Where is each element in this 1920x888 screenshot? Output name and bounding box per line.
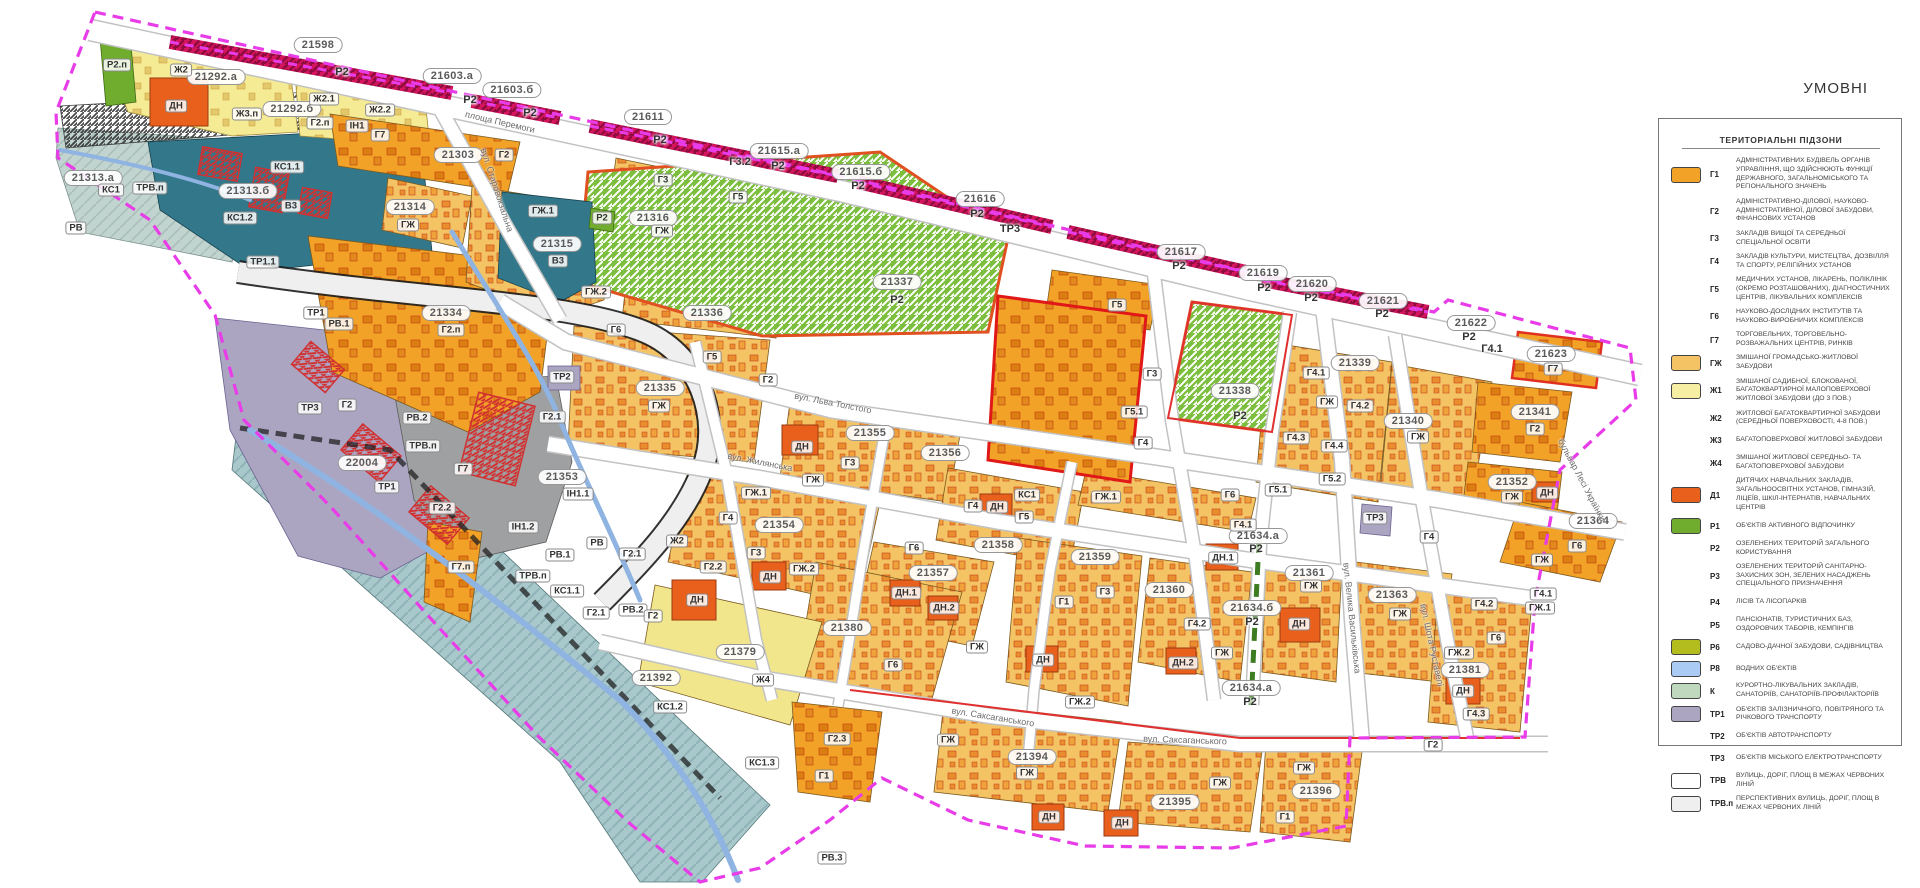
legend-item: ТРВ.пПЕРСПЕКТИВНИХ ВУЛИЦЬ, ДОРІГ, ПЛОЩ В…: [1671, 795, 1891, 813]
legend-item: Ж1ЗМІШАНОЇ САДИБНОЇ, БЛОКОВАНОЇ, БАГАТОК…: [1671, 378, 1891, 404]
legend-item: Р3ОЗЕЛЕНЕНИХ ТЕРИТОРІЙ САНІТАРНО-ЗАХИСНИ…: [1671, 563, 1891, 589]
legend-code: Р3: [1710, 572, 1736, 581]
legend-code: Г2: [1710, 207, 1736, 216]
legend-item: Г7ТОРГОВЕЛЬНИХ, ТОРГОВЕЛЬНО-РОЗВАЖАЛЬНИХ…: [1671, 331, 1891, 349]
legend-panel: ТЕРИТОРІАЛЬНІ ПІДЗОНИ Г1АДМІНІСТРАТИВНИХ…: [1658, 118, 1902, 746]
legend-code: Д1: [1710, 491, 1736, 500]
legend-swatch: [1671, 661, 1701, 677]
legend-text: ЗАКЛАДІВ ВИЩОЇ ТА СЕРЕДНЬОЇ СПЕЦІАЛЬНОЇ …: [1736, 230, 1891, 248]
legend-code: Г3: [1710, 234, 1736, 243]
legend-swatch: [1671, 729, 1701, 745]
legend-swatch: [1671, 568, 1701, 584]
legend-code: Р2: [1710, 544, 1736, 553]
legend-text: ПЕРСПЕКТИВНИХ ВУЛИЦЬ, ДОРІГ, ПЛОЩ В МЕЖА…: [1736, 795, 1891, 813]
legend-text: САДОВО-ДАЧНОЇ ЗАБУДОВИ, САДІВНИЦТВА: [1736, 643, 1883, 652]
legend-text: ОЗЕЛЕНЕНИХ ТЕРИТОРІЙ САНІТАРНО-ЗАХИСНИХ …: [1736, 563, 1891, 589]
legend-code: К: [1710, 687, 1736, 696]
legend-text: ОБ'ЄКТІВ МІСЬКОГО ЕЛЕКТРОТРАНСПОРТУ: [1736, 754, 1882, 763]
legend-swatch: [1671, 309, 1701, 325]
legend-item: ТР1ОБ'ЄКТІВ ЗАЛІЗНИЧНОГО, ПОВІТРЯНОГО ТА…: [1671, 706, 1891, 724]
legend-items: Г1АДМІНІСТРАТИВНИХ БУДІВЕЛЬ ОРГАНІВ УПРА…: [1671, 157, 1891, 813]
legend-code: Ж4: [1710, 459, 1736, 468]
legend-text: ЗМІШАНОЇ САДИБНОЇ, БЛОКОВАНОЇ, БАГАТОКВА…: [1736, 378, 1891, 404]
legend-swatch: [1671, 595, 1701, 611]
legend-swatch: [1671, 254, 1701, 270]
legend-text: ПАНСІОНАТІВ, ТУРИСТИЧНИХ БАЗ, ОЗДОРОВЧИХ…: [1736, 616, 1891, 634]
legend-code: Г7: [1710, 336, 1736, 345]
legend-swatch: [1671, 706, 1701, 722]
legend-code: Г6: [1710, 312, 1736, 321]
zoning-map: [0, 0, 1920, 888]
legend-text: ОБ'ЄКТІВ ЗАЛІЗНИЧНОГО, ПОВІТРЯНОГО ТА РІ…: [1736, 706, 1891, 724]
legend-code: Г5: [1710, 285, 1736, 294]
legend-item: Ж2ЖИТЛОВОЇ БАГАТОКВАРТИРНОЇ ЗАБУДОВИ (СЕ…: [1671, 410, 1891, 428]
legend-text: ВОДНИХ ОБ'ЄКТІВ: [1736, 665, 1797, 674]
legend-swatch: [1671, 683, 1701, 699]
legend-item: Р2ОЗЕЛЕНЕНИХ ТЕРИТОРІЙ ЗАГАЛЬНОГО КОРИСТ…: [1671, 540, 1891, 558]
legend-swatch: [1671, 639, 1701, 655]
legend-text: ЗМІШАНОЇ ЖИТЛОВОЇ СЕРЕДНЬО- ТА БАГАТОПОВ…: [1736, 454, 1891, 472]
legend-text: ЗМІШАНОЇ ГРОМАДСЬКО-ЖИТЛОВОЇ ЗАБУДОВИ: [1736, 354, 1891, 372]
legend-item: ККУРОРТНО-ЛІКУВАЛЬНИХ ЗАКЛАДІВ, САНАТОРІ…: [1671, 682, 1891, 700]
legend-text: БАГАТОПОВЕРХОВОЇ ЖИТЛОВОЇ ЗАБУДОВИ: [1736, 436, 1882, 445]
legend-item: Р5ПАНСІОНАТІВ, ТУРИСТИЧНИХ БАЗ, ОЗДОРОВЧ…: [1671, 616, 1891, 634]
legend-code: Р8: [1710, 664, 1736, 673]
legend-item: Г6НАУКОВО-ДОСЛІДНИХ ІНСТИТУТІВ ТА НАУКОВ…: [1671, 308, 1891, 326]
legend-swatch: [1671, 487, 1701, 503]
legend-code: Р5: [1710, 621, 1736, 630]
legend-item: ТР3ОБ'ЄКТІВ МІСЬКОГО ЕЛЕКТРОТРАНСПОРТУ: [1671, 750, 1891, 766]
legend-code: ГЖ: [1710, 359, 1736, 368]
legend-code: Ж1: [1710, 386, 1736, 395]
legend-swatch: [1671, 518, 1701, 534]
legend-text: ОЗЕЛЕНЕНИХ ТЕРИТОРІЙ ЗАГАЛЬНОГО КОРИСТУВ…: [1736, 540, 1891, 558]
legend-swatch: [1671, 231, 1701, 247]
legend-code: ТРВ: [1710, 776, 1736, 785]
legend-item: Д1ДИТЯЧИХ НАВЧАЛЬНИХ ЗАКЛАДІВ, ЗАГАЛЬНОО…: [1671, 477, 1891, 512]
legend-code: ТРВ.п: [1710, 799, 1736, 808]
legend-item: Р6САДОВО-ДАЧНОЇ ЗАБУДОВИ, САДІВНИЦТВА: [1671, 639, 1891, 655]
legend-swatch: [1671, 281, 1701, 297]
legend-code: Р1: [1710, 522, 1736, 531]
legend-swatch: [1671, 750, 1701, 766]
legend-item: ТРВВУЛИЦЬ, ДОРІГ, ПЛОЩ В МЕЖАХ ЧЕРВОНИХ …: [1671, 772, 1891, 790]
legend-item: ГЖЗМІШАНОЇ ГРОМАДСЬКО-ЖИТЛОВОЇ ЗАБУДОВИ: [1671, 354, 1891, 372]
legend-item: Ж4ЗМІШАНОЇ ЖИТЛОВОЇ СЕРЕДНЬО- ТА БАГАТОП…: [1671, 454, 1891, 472]
legend-swatch: [1671, 410, 1701, 426]
legend-code: Ж2: [1710, 414, 1736, 423]
legend-swatch: [1671, 617, 1701, 633]
legend-title: УМОВНІ: [1803, 80, 1868, 97]
legend-swatch: [1671, 355, 1701, 371]
legend-item: Ж3БАГАТОПОВЕРХОВОЇ ЖИТЛОВОЇ ЗАБУДОВИ: [1671, 433, 1891, 449]
legend-header: ТЕРИТОРІАЛЬНІ ПІДЗОНИ: [1671, 135, 1891, 145]
legend-text: КУРОРТНО-ЛІКУВАЛЬНИХ ЗАКЛАДІВ, САНАТОРІЇ…: [1736, 682, 1891, 700]
legend-item: Р8ВОДНИХ ОБ'ЄКТІВ: [1671, 661, 1891, 677]
legend-swatch: [1671, 433, 1701, 449]
legend-code: ТР3: [1710, 754, 1736, 763]
legend-text: ЗАКЛАДІВ КУЛЬТУРИ, МИСТЕЦТВА, ДОЗВІЛЛЯ Т…: [1736, 253, 1891, 271]
legend-item: Р1ОБ'ЄКТІВ АКТИВНОГО ВІДПОЧИНКУ: [1671, 518, 1891, 534]
legend-text: ДИТЯЧИХ НАВЧАЛЬНИХ ЗАКЛАДІВ, ЗАГАЛЬНООСВ…: [1736, 477, 1891, 512]
legend-item: Г2АДМІНІСТРАТИВНО-ДІЛОВОЇ, НАУКОВО-АДМІН…: [1671, 198, 1891, 224]
legend-swatch: [1671, 541, 1701, 557]
legend-text: ЛІСІВ ТА ЛІСОПАРКІВ: [1736, 598, 1807, 607]
legend-swatch: [1671, 383, 1701, 399]
legend-text: ОБ'ЄКТІВ АВТОТРАНСПОРТУ: [1736, 732, 1832, 741]
legend-swatch: [1671, 332, 1701, 348]
legend-item: Г4ЗАКЛАДІВ КУЛЬТУРИ, МИСТЕЦТВА, ДОЗВІЛЛЯ…: [1671, 253, 1891, 271]
legend-code: Р6: [1710, 643, 1736, 652]
legend-text: МЕДИЧНИХ УСТАНОВ, ЛІКАРЕНЬ, ПОЛІКЛІНІК (…: [1736, 276, 1891, 302]
legend-text: ЖИТЛОВОЇ БАГАТОКВАРТИРНОЇ ЗАБУДОВИ (СЕРЕ…: [1736, 410, 1891, 428]
legend-swatch: [1671, 455, 1701, 471]
legend-code: ТР2: [1710, 732, 1736, 741]
legend-code: Г4: [1710, 257, 1736, 266]
legend-divider: [1682, 148, 1880, 149]
legend-swatch: [1671, 203, 1701, 219]
legend-item: Г1АДМІНІСТРАТИВНИХ БУДІВЕЛЬ ОРГАНІВ УПРА…: [1671, 157, 1891, 192]
legend-text: АДМІНІСТРАТИВНИХ БУДІВЕЛЬ ОРГАНІВ УПРАВЛ…: [1736, 157, 1891, 192]
legend-text: ТОРГОВЕЛЬНИХ, ТОРГОВЕЛЬНО-РОЗВАЖАЛЬНИХ Ц…: [1736, 331, 1891, 349]
legend-item: Г3ЗАКЛАДІВ ВИЩОЇ ТА СЕРЕДНЬОЇ СПЕЦІАЛЬНО…: [1671, 230, 1891, 248]
legend-code: ТР1: [1710, 710, 1736, 719]
legend-text: ОБ'ЄКТІВ АКТИВНОГО ВІДПОЧИНКУ: [1736, 522, 1855, 531]
legend-swatch: [1671, 773, 1701, 789]
legend-code: Р4: [1710, 598, 1736, 607]
legend-text: АДМІНІСТРАТИВНО-ДІЛОВОЇ, НАУКОВО-АДМІНІС…: [1736, 198, 1891, 224]
legend-text: НАУКОВО-ДОСЛІДНИХ ІНСТИТУТІВ ТА НАУКОВО-…: [1736, 308, 1891, 326]
legend-swatch: [1671, 796, 1701, 812]
legend-code: Г1: [1710, 170, 1736, 179]
legend-item: Р4ЛІСІВ ТА ЛІСОПАРКІВ: [1671, 595, 1891, 611]
legend-item: ТР2ОБ'ЄКТІВ АВТОТРАНСПОРТУ: [1671, 729, 1891, 745]
legend-swatch: [1671, 167, 1701, 183]
zoning-map-page: 2159821603.а21603.б2161121615.а21615.б21…: [0, 0, 1920, 888]
legend-item: Г5МЕДИЧНИХ УСТАНОВ, ЛІКАРЕНЬ, ПОЛІКЛІНІК…: [1671, 276, 1891, 302]
legend-text: ВУЛИЦЬ, ДОРІГ, ПЛОЩ В МЕЖАХ ЧЕРВОНИХ ЛІН…: [1736, 772, 1891, 790]
legend-code: Ж3: [1710, 436, 1736, 445]
